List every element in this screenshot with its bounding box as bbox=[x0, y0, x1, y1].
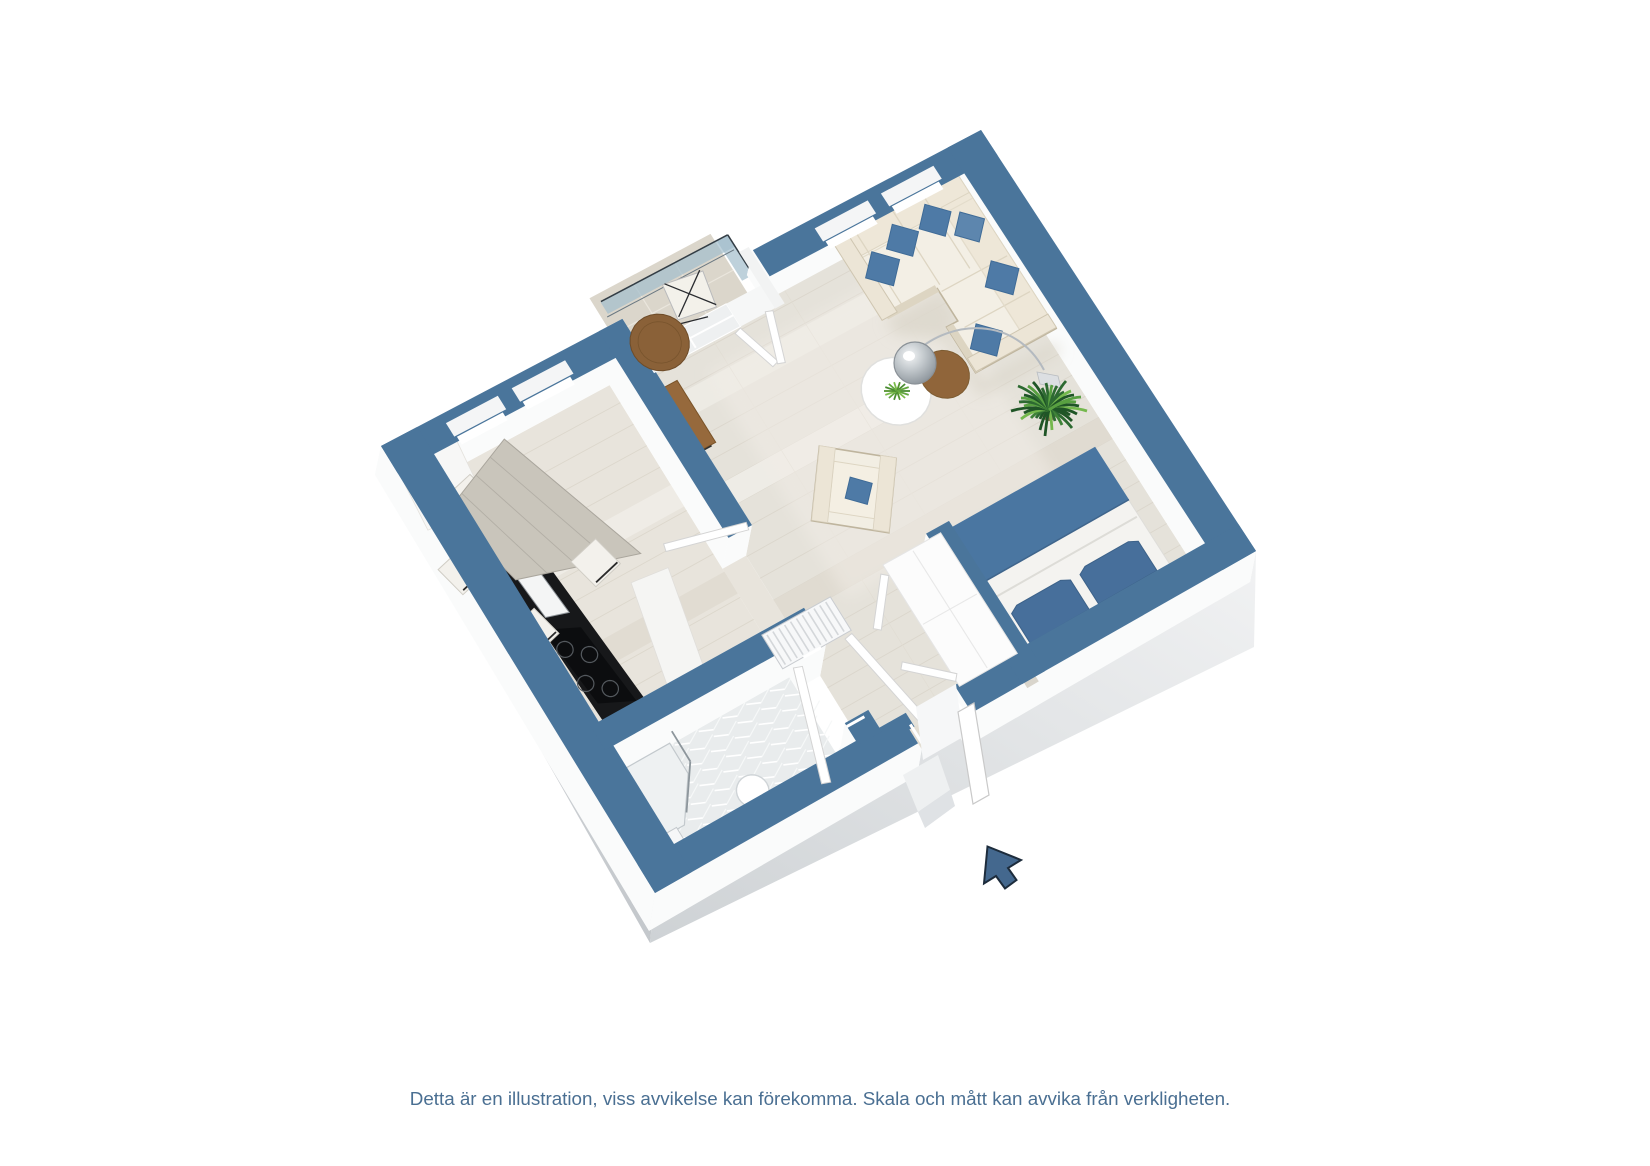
svg-text:Detta är en illustration, viss: Detta är en illustration, viss avvikelse… bbox=[410, 1088, 1230, 1109]
